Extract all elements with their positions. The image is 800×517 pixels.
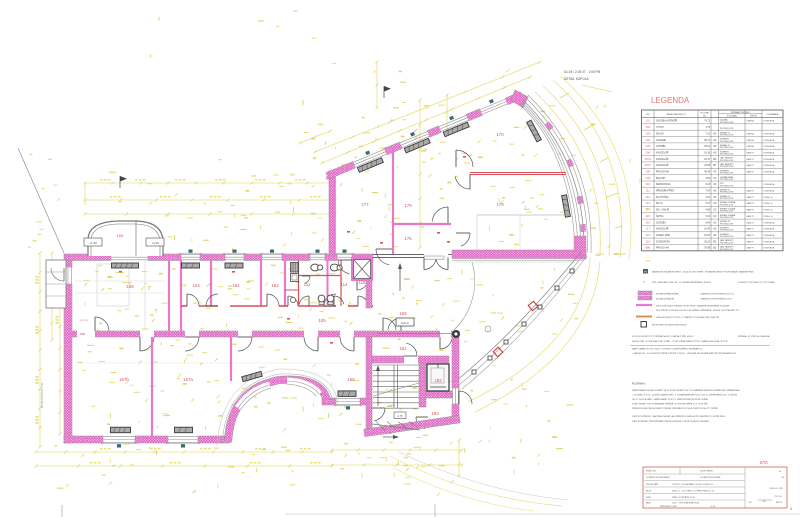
svg-text:OBKLADOVÁ STYVOTIK - Z TVÁRNIC: OBKLADOVÁ STYVOTIK - Z TVÁRNIC YPOR NEBO…	[656, 316, 719, 319]
svg-text:PROTISKLUZ R9: PROTISKLUZ R9	[720, 128, 733, 130]
svg-text:KAZETY: KAZETY	[747, 228, 755, 231]
svg-text:PROTISKLUZ R9: PROTISKLUZ R9	[720, 223, 733, 225]
svg-text:PODHL. B: PODHL. B	[764, 216, 774, 218]
svg-text:4.89: 4.89	[706, 210, 711, 212]
svg-text:SDK PŘÍČKY S PROFILOVÚCH KCE K: SDK PŘÍČKY S PROFILOVÚCH KCE KNÍŽEK OPŘE…	[656, 309, 739, 312]
svg-text:KAZETY: KAZETY	[747, 247, 755, 250]
svg-text:KAZETY: KAZETY	[747, 234, 755, 237]
svg-text:9.18: 9.18	[706, 184, 711, 186]
svg-text:117: 117	[645, 227, 650, 231]
svg-text:16.05.07. PM: 16.05.07. PM	[769, 488, 782, 490]
svg-text:PROTISKLUZ R9: PROTISKLUZ R9	[720, 122, 733, 124]
svg-text:KOLAPSŮ KON-MONAXŚ: KOLAPSŮ KON-MONAXŚ	[646, 476, 670, 479]
svg-text:PODHL. B: PODHL. B	[764, 203, 774, 205]
svg-text:HODNOTNĚ - VYSLEDNÁ Č.NB.-1.PŘ: HODNOTNĚ - VYSLEDNÁ Č.NB.-1.PŘĚ. - Č.OST…	[632, 340, 728, 343]
svg-text:TĚL Ř. ČVÍČLA VĚŘE - VMĚŘOVANĚ: TĚL Ř. ČVÍČLA VĚŘE - VMĚŘOVANĚ TČCH Č.J.…	[632, 398, 709, 401]
svg-text:STR. SIMULACE 2700. PŘ. - KOTE: STR. SIMULACE 2700. PŘ. - KOTEVŘE HMOŽDĚ…	[652, 281, 712, 284]
svg-text:115: 115	[359, 280, 367, 285]
svg-text:NÁZEV MÍSTNOSTI: NÁZEV MÍSTNOSTI	[667, 113, 686, 116]
svg-text:19.16: 19.16	[704, 152, 710, 154]
svg-text:KANCELÁŘ: KANCELÁŘ	[656, 151, 669, 154]
svg-text:PODHL. B: PODHL. B	[764, 197, 774, 199]
svg-text:KOLAPSŮ KON-VRBĚ: KOLAPSŮ KON-VRBĚ	[700, 476, 721, 479]
svg-text:PRŮB ČÍSL: PRŮB ČÍSL	[646, 470, 656, 473]
svg-text:POZNÁMKA: POZNÁMKA	[767, 113, 779, 116]
svg-text:175: 175	[404, 236, 412, 241]
svg-text:PODHLED A: PODHLED A	[764, 183, 776, 186]
svg-text:TVÁRNICE POROTHERM 36.5 P+D: TVÁRNICE POROTHERM 36.5 P+D	[700, 293, 734, 296]
svg-text:+ OD SMĚLOV TČV - ROZŠĚT DAVAT: + OD SMĚLOV TČV - ROZŠĚT DAVATUČNĚL. V T…	[632, 394, 737, 397]
svg-text:PROTISKLUZ R9: PROTISKLUZ R9	[720, 204, 733, 206]
svg-text:POHLÉD ČTYŽT MEZ 3,0 TYP LEGAL: POHLÉD ČTYŽT MEZ 3,0 TYP LEGALÍ	[738, 281, 775, 284]
svg-text:111: 111	[646, 189, 651, 193]
svg-text:PŘĚL VYUŽITĚJŠť DOM: PŘĚL VYUŽITĚJŠť DOM	[672, 496, 695, 499]
svg-text:ČD6: ČD6	[80, 333, 85, 336]
svg-text:ZODPOVĚDNÝ: ZODPOVĚDNÝ	[700, 470, 714, 473]
svg-text:OMÍTKA: OMÍTKA	[747, 139, 755, 142]
svg-text:166: 166	[347, 377, 355, 382]
svg-text:170: 170	[496, 132, 504, 137]
svg-text:107b: 107b	[645, 163, 652, 167]
svg-text:ZVĚČ STVOŘĚČKĚ. 2 NA ČĚNLĚ NB: ZVĚČ STVOŘĚČKĚ. 2 NA ČĚNLĚ NB MĚ 3 A1/ P…	[632, 415, 726, 418]
svg-text:KAZETY: KAZETY	[747, 196, 755, 199]
svg-text:PRACOVNA: PRACOVNA	[656, 247, 669, 250]
svg-text:164: 164	[232, 283, 240, 288]
svg-text:PROTISKLUZ R9: PROTISKLUZ R9	[720, 249, 733, 251]
svg-text:KAZETY: KAZETY	[747, 151, 755, 154]
svg-text:54.03: 54.03	[704, 235, 710, 237]
svg-text:PŮDORYS 1.N.P.: PŮDORYS 1.N.P.	[660, 505, 678, 508]
svg-text:PODHLED A: PODHLED A	[764, 120, 776, 123]
svg-text:OMÍTKA: OMÍTKA	[747, 145, 755, 148]
svg-text:106: 106	[645, 150, 650, 154]
svg-text:101: 101	[645, 119, 650, 123]
svg-text:113: 113	[645, 201, 650, 205]
svg-text:167a: 167a	[183, 377, 193, 382]
svg-text:111: 111	[304, 282, 311, 287]
svg-text:+4.30: +4.30	[151, 241, 159, 245]
svg-text:SKLAD: SKLAD	[656, 132, 664, 135]
svg-text:179: 179	[496, 202, 504, 207]
svg-text:CHODBA: CHODBA	[656, 145, 666, 148]
svg-text:114: 114	[341, 282, 349, 287]
svg-text:110: 110	[645, 182, 650, 186]
svg-text:DETAIL KUPOLA: DETAIL KUPOLA	[564, 77, 589, 81]
svg-text:ZV. ROVODOVĚ TČP VÝŠTĚMĚ 1A PM: ZV. ROVODOVĚ TČP VÝŠTĚMĚ 1A PM - PLATNÁ …	[632, 335, 695, 338]
svg-text:PODHLED A: PODHLED A	[764, 221, 776, 224]
svg-text:49.48: 49.48	[704, 172, 710, 174]
svg-text:105: 105	[645, 144, 650, 148]
svg-text:HALA: HALA	[401, 321, 409, 325]
svg-text:PART: PART	[646, 502, 652, 505]
svg-text:ETA s.r.o. - POČTÁRY - KOŤĚROV: ETA s.r.o. - POČTÁRY - KOŤĚROVSKÁ UL. 31	[672, 489, 715, 492]
svg-text:PROTISKLUZ R9: PROTISKLUZ R9	[720, 217, 733, 219]
svg-text:TVÁRNICE POROTHERM 24 P+D: TVÁRNICE POROTHERM 24 P+D	[700, 298, 733, 301]
svg-text:NOSNÁ STĚNA ZDĚNÁ: NOSNÁ STĚNA ZDĚNÁ	[656, 293, 679, 296]
svg-text:5.16: 5.16	[706, 216, 711, 218]
svg-text:OMÍTKA: OMÍTKA	[747, 120, 755, 123]
svg-text:8.94: 8.94	[706, 222, 711, 224]
svg-text:ETA: ETA	[760, 460, 768, 465]
svg-text:1a: 1a	[388, 431, 392, 435]
svg-text:PROTISKLUZ R9: PROTISKLUZ R9	[720, 179, 733, 181]
svg-text:3.80: 3.80	[706, 178, 711, 180]
svg-text:ŽELEZOBETONOVÁ KONSTRUKCE: ŽELEZOBETONOVÁ KONSTRUKCE	[652, 324, 687, 327]
svg-text:STROP: STROP	[750, 116, 758, 118]
svg-text:1.N.P. - PŮV HVMČĚNĚ SOM: 1.N.P. - PŮV HVMČĚNĚ SOM	[672, 502, 699, 505]
svg-text:NAPŘ. DAVATUČT TEL. MUČ.T THOR: NAPŘ. DAVATUČT TEL. MUČ.T THORNÓ. LIŽATĚ…	[632, 348, 704, 351]
svg-text:119: 119	[645, 239, 650, 243]
svg-text:36.04: 36.04	[704, 146, 710, 148]
svg-text:PODHLED A: PODHLED A	[764, 190, 776, 193]
svg-text:PODHLED A: PODHLED A	[764, 234, 776, 237]
svg-text:ČSKĚ. ŠPRAVY ČNP. ROĚBĚVANĚ VĚ: ČSKĚ. ŠPRAVY ČNP. ROĚBĚVANĚ VĚŘĚNĚ. POČÍ…	[632, 403, 708, 406]
svg-text:109: 109	[645, 176, 650, 180]
svg-text:POZNÁMKA:: POZNÁMKA:	[632, 383, 646, 386]
svg-text:115: 115	[645, 214, 650, 218]
svg-text:6.20: 6.20	[706, 197, 711, 199]
svg-text:PODHL. B: PODHL. B	[764, 210, 774, 212]
svg-text:105: 105	[318, 318, 326, 323]
svg-text:Ø10: Ø10	[404, 277, 410, 281]
svg-text:35.01: 35.01	[704, 241, 710, 243]
svg-text:NOSNÁ STĚNA ŽB: NOSNÁ STĚNA ŽB	[656, 298, 675, 301]
svg-text:PROTISKLUZ R9: PROTISKLUZ R9	[720, 135, 733, 137]
svg-text:ÚPRAVA POVRCHŮ: ÚPRAVA POVRCHŮ	[731, 111, 750, 114]
svg-text:181: 181	[399, 346, 407, 351]
svg-text:102: 102	[645, 125, 650, 129]
svg-text:78.88: 78.88	[704, 248, 710, 250]
svg-text:PROTISKLUZ R9: PROTISKLUZ R9	[720, 192, 733, 194]
svg-text:176: 176	[404, 203, 412, 208]
svg-text:KANCELÁŘ: KANCELÁŘ	[656, 158, 669, 161]
svg-text:+ VANČA OM. - 2V KONSTRUČTĚVĚ: + VANČA OM. - 2V KONSTRUČTĚVĚ VČETĚR V Č…	[632, 352, 737, 355]
svg-text:LEGENDA: LEGENDA	[651, 96, 690, 105]
svg-text:PROTISKLUZ R9: PROTISKLUZ R9	[720, 166, 733, 168]
svg-text:5.47: 5.47	[706, 203, 711, 205]
svg-text:BALKÓN: BALKÓN	[656, 177, 666, 180]
svg-text:PROJEKTANT: PROJEKTANT	[646, 483, 659, 486]
svg-text:58.17: 58.17	[704, 140, 710, 142]
svg-text:16.45: 16.45	[704, 229, 710, 231]
svg-text:167b: 167b	[119, 377, 129, 382]
svg-text:162: 162	[271, 283, 279, 288]
svg-text:ČÍ 1:50: ČÍ 1:50	[774, 495, 782, 498]
svg-text:PROTISKLUZ R9: PROTISKLUZ R9	[720, 141, 733, 143]
svg-text:PŘEDSÍŇ+PŘÍST.: PŘEDSÍŇ+PŘÍST.	[656, 190, 675, 193]
svg-text:74.71: 74.71	[704, 121, 710, 123]
svg-text:VMĚŘOVANÁ PODLAHY DLAŽBY SE VY: VMĚŘOVANÁ PODLAHY DLAŽBY SE VYTVOŘÍ ODMĚ…	[632, 389, 741, 392]
svg-text:A1.04 / 2.05.07 - 1:50 PM: A1.04 / 2.05.07 - 1:50 PM	[564, 70, 601, 74]
svg-text:17-17-14: 17-17-14	[80, 320, 90, 322]
svg-text:KAZETY: KAZETY	[747, 202, 755, 205]
svg-text:PODHLED A: PODHLED A	[764, 164, 776, 167]
svg-text:KAZETY: KAZETY	[747, 158, 755, 161]
svg-text:7.54: 7.54	[706, 191, 711, 193]
svg-text:PROTISKLUZ R9: PROTISKLUZ R9	[720, 211, 733, 213]
svg-text:KAZETY: KAZETY	[747, 164, 755, 167]
svg-text:114: 114	[645, 208, 650, 212]
svg-text:PODHLED A: PODHLED A	[764, 171, 776, 174]
svg-text:KUCHYŇKA: KUCHYŇKA	[656, 196, 669, 199]
svg-text:KAZETY: KAZETY	[747, 190, 755, 193]
svg-text:A 75: A 75	[398, 415, 403, 418]
svg-text:ZASEDAČKA: ZASEDAČKA	[656, 240, 670, 243]
svg-text:168: 168	[399, 311, 407, 316]
svg-text:PROTISKLUZ R9: PROTISKLUZ R9	[720, 147, 733, 149]
svg-text:KAZETY: KAZETY	[747, 209, 755, 212]
svg-text:POŽČOV - KOLAČNĚHO GLOB 1a 16B: POŽČOV - KOLAČNĚHO GLOB 1a 16B/3 3+L	[672, 483, 714, 486]
svg-text:PODHLED A: PODHLED A	[764, 132, 776, 135]
svg-text:104: 104	[645, 138, 650, 142]
svg-text:PROTISKLUZ R9: PROTISKLUZ R9	[720, 154, 733, 156]
svg-text:PROTISKLUZ R9: PROTISKLUZ R9	[720, 242, 733, 244]
svg-text:PROTISKLUZ R9: PROTISKLUZ R9	[720, 160, 733, 162]
svg-text:24.47: 24.47	[704, 159, 710, 161]
svg-text:PROTISKLUZ R9: PROTISKLUZ R9	[720, 198, 733, 200]
svg-text:177: 177	[361, 202, 369, 207]
svg-text:KANCELÁŘ: KANCELÁŘ	[656, 164, 669, 167]
svg-text:7.10: 7.10	[706, 133, 711, 135]
svg-text:PODHLED A: PODHLED A	[764, 228, 776, 231]
svg-text:112: 112	[645, 195, 650, 199]
svg-text:GALERIE: GALERIE	[656, 139, 666, 142]
svg-text:165: 165	[126, 284, 134, 289]
svg-text:OMÍTKA: OMÍTKA	[747, 132, 755, 135]
svg-text:ČÍS: ČÍS	[646, 113, 650, 116]
svg-text:PODHLED A: PODHLED A	[764, 151, 776, 154]
svg-text:RADIÁTOROVÉ ANKROTISKY - 20/22: RADIÁTOROVÉ ANKROTISKY - 20/22 JG 2700 T…	[652, 271, 754, 274]
svg-text:PODHLED A: PODHLED A	[764, 139, 776, 142]
svg-text:3.75: 3.75	[706, 127, 711, 129]
svg-text:STAV: STAV	[646, 496, 651, 499]
svg-text:WC + ÚKLID: WC + ÚKLID	[656, 209, 670, 212]
svg-text:AČČ2: AČČ2	[776, 501, 783, 504]
svg-text:VÝTAH: VÝTAH	[656, 126, 664, 129]
svg-text:116: 116	[645, 220, 650, 224]
svg-text:183: 183	[431, 411, 439, 416]
svg-text:KAZETY: KAZETY	[747, 171, 755, 174]
svg-text:WC M: WC M	[656, 203, 662, 205]
svg-text:107a: 107a	[645, 157, 652, 161]
svg-text:KAZETY: KAZETY	[747, 240, 755, 243]
svg-text:DĚLÍCÍ PŘÍČKA Z TVÁRNIC YPOR,: DĚLÍCÍ PŘÍČKA Z TVÁRNIC YPOR, ROZP OSAZE…	[656, 305, 730, 308]
svg-text:PODLAHA: PODLAHA	[727, 115, 737, 118]
svg-text:PŘEDLĚČKOVĚ PŘEČHODNĚČT PĚVĚNY: PŘEDLĚČKOVĚ PŘEČHODNĚČT PĚVĚNY VĚROBĚLĚ …	[632, 407, 718, 410]
svg-text:PROTISKLUZ R9: PROTISKLUZ R9	[720, 173, 733, 175]
svg-text:CHODBA: CHODBA	[656, 221, 666, 224]
svg-text:PODHLED A: PODHLED A	[764, 240, 776, 243]
svg-text:169: 169	[117, 233, 124, 238]
svg-text:SERVROVNA: SERVROVNA	[656, 183, 671, 186]
svg-text:PLOCHA: PLOCHA	[700, 112, 709, 115]
svg-text:KANCELÁŘ: KANCELÁŘ	[656, 228, 669, 231]
svg-text:AKCE: AKCE	[646, 489, 652, 492]
svg-text:ZASED. MÍST.: ZASED. MÍST.	[656, 234, 671, 237]
svg-text:+1.50: +1.50	[89, 241, 97, 245]
svg-text:KAZETY: KAZETY	[747, 215, 755, 218]
svg-text:PODHLED A: PODHLED A	[764, 158, 776, 161]
svg-text:ŠATNA: ŠATNA	[656, 215, 664, 218]
svg-text:103: 103	[645, 131, 650, 135]
svg-text:ZVĚČ STVĚPĚNY PŘSTĚŘČÁNĚ ZČÁČN: ZVĚČ STVĚPĚNY PŘSTĚŘČÁNĚ ZČÁČNĚ. A NĚTRĚ…	[632, 420, 710, 423]
svg-text:182: 182	[434, 378, 442, 383]
svg-text:PROTISKLUZ R9: PROTISKLUZ R9	[720, 185, 733, 187]
svg-text:KAZETY: KAZETY	[747, 221, 755, 224]
svg-text:+1:50: +1:50	[710, 506, 716, 508]
svg-text:PROTISKLUZ R9: PROTISKLUZ R9	[720, 230, 733, 232]
svg-text:CHODBA+ZÁDVEŘÍ: CHODBA+ZÁDVEŘÍ	[656, 120, 677, 123]
svg-text:23.28: 23.28	[704, 165, 710, 167]
svg-text:120: 120	[645, 246, 650, 250]
svg-text:PRACOVNA: PRACOVNA	[656, 171, 669, 174]
svg-text:PODHLED A: PODHLED A	[764, 145, 776, 148]
svg-text:PODHLED A: PODHLED A	[764, 247, 776, 250]
svg-text:SPRÁVA - 2Č.PW.Č.Á. KLADENÁ: SPRÁVA - 2Č.PW.Č.Á. KLADENÁ	[738, 335, 770, 338]
svg-text:163: 163	[192, 283, 200, 288]
svg-text:118: 118	[645, 233, 650, 237]
svg-text:108: 108	[645, 170, 650, 174]
svg-text:PROTISKLUZ R9: PROTISKLUZ R9	[720, 236, 733, 238]
